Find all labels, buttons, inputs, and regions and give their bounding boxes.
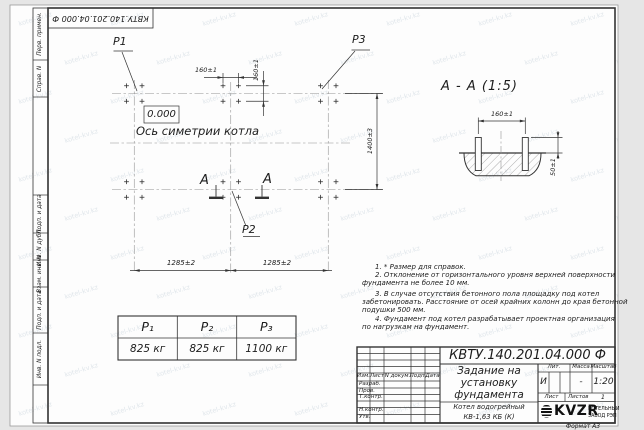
tb-row-utv: Утв. bbox=[359, 415, 371, 421]
section-view bbox=[459, 118, 563, 182]
boiler-symmetry-axis-label: Ось симетрии котла bbox=[136, 126, 259, 138]
tb-lit-label: Лит. bbox=[538, 364, 570, 372]
tb-col-podp: Подп. bbox=[411, 373, 425, 381]
doc-title-line-3: фундамента bbox=[440, 390, 538, 401]
section-letter-right: А bbox=[263, 173, 272, 186]
plan-view bbox=[110, 50, 383, 273]
note-line-4: 3. В случае отсутствия бетонного пола пл… bbox=[362, 291, 599, 298]
section-title: А - А (1:5) bbox=[441, 80, 518, 93]
doc-title-line-1: Задание на bbox=[440, 366, 538, 377]
dim-160-horizontal: 160±1 bbox=[195, 67, 217, 74]
tb-scale-value: 1:20 bbox=[592, 372, 615, 393]
company-subtitle-1: КОТЕЛЬНЫЙ bbox=[588, 406, 620, 412]
tb-lit-value: И bbox=[538, 372, 549, 393]
dim-160-section: 160±1 bbox=[486, 111, 518, 119]
load-point-p3-label: P3 bbox=[352, 34, 366, 45]
load-table-header-p2: P₂ bbox=[177, 316, 236, 338]
kvzr-logo-icon bbox=[541, 405, 552, 418]
note-line-8: по нагрузкам на фундамент. bbox=[362, 324, 469, 331]
dim-160-vertical: 160±1 bbox=[252, 55, 260, 85]
note-line-3: фундамента не более 10 мм. bbox=[362, 280, 470, 287]
company-subtitle-2: ЗАВОД РЭП bbox=[588, 413, 617, 419]
margin-label-perv-primen: Перв. примен. bbox=[36, 9, 46, 59]
tb-col-data: Дата bbox=[425, 373, 440, 381]
load-table-header-p3: P₃ bbox=[237, 316, 296, 338]
tb-col-list: Лист bbox=[370, 373, 384, 381]
tb-row-tkontr: Т.контр. bbox=[359, 395, 383, 401]
dim-1285-right: 1285±2 bbox=[257, 259, 297, 267]
tb-mass-value: - bbox=[570, 372, 592, 393]
tb-sheet-label: Лист bbox=[538, 393, 565, 402]
margin-label-inv-podl: Инв. N подл. bbox=[36, 334, 46, 384]
drawing-sheet: kotel-kv.kzkotel-kv.kzkotel-kv.kzkotel-k… bbox=[0, 0, 644, 430]
tb-col-izm: Изм. bbox=[357, 373, 370, 381]
anchor-bolt-left bbox=[475, 138, 481, 171]
elevation-mark: 0.000 bbox=[144, 106, 179, 123]
top-stamp-designation: КВТУ.140.201.04.000 Ф bbox=[48, 8, 153, 28]
anchor-bolts-plan bbox=[124, 83, 338, 199]
object-name-line-2: КВ-1,63 КБ (К) bbox=[440, 413, 538, 422]
load-table-header-p1: P₁ bbox=[118, 316, 177, 338]
load-table-value-p3: 1100 кг bbox=[237, 338, 296, 360]
dim-50-section: 50±1 bbox=[549, 155, 557, 179]
note-line-6: подушки 500 мм. bbox=[362, 307, 426, 314]
tb-sheets-label: Листов bbox=[568, 395, 589, 401]
anchor-bolt-right bbox=[522, 138, 528, 171]
note-line-1: 1. * Размер для справок. bbox=[362, 264, 466, 271]
format-label: Формат А3 bbox=[556, 424, 610, 430]
section-letter-left: А bbox=[200, 174, 209, 187]
load-table-value-p1: 825 кг bbox=[118, 338, 177, 360]
note-line-2: 2. Отклонение от горизонтального уровня … bbox=[362, 272, 615, 279]
tb-sheets-value: 1 bbox=[596, 393, 610, 402]
margin-label-podp-data-2: Подп. и дата bbox=[36, 285, 46, 335]
note-line-5: забетонировать. Расстояние от осей крайн… bbox=[362, 299, 628, 306]
tb-col-ndocum: N докум. bbox=[384, 373, 411, 381]
tb-mass-label: Масса bbox=[570, 364, 592, 372]
margin-label-sprav-n: Справ. N bbox=[36, 54, 46, 104]
tb-scale-label: Масштаб bbox=[592, 364, 615, 372]
drawing-designation: КВТУ.140.201.04.000 Ф bbox=[441, 348, 614, 364]
object-name-line-1: Котел водогрейный bbox=[440, 403, 538, 412]
dim-1400: 1400±3 bbox=[366, 123, 374, 159]
tb-row-razrab: Разраб. bbox=[359, 382, 381, 388]
load-table-value-p2: 825 кг bbox=[177, 338, 236, 360]
doc-title-line-2: установку bbox=[440, 378, 538, 389]
note-line-7: 4. Фундамент под котел разрабатывает про… bbox=[362, 316, 615, 323]
tb-row-nkontr: Н.контр. bbox=[359, 408, 384, 414]
load-point-p1-label: P1 bbox=[113, 36, 127, 47]
dim-1285-left: 1285±2 bbox=[161, 259, 201, 267]
load-point-p2-label: P2 bbox=[242, 224, 256, 235]
